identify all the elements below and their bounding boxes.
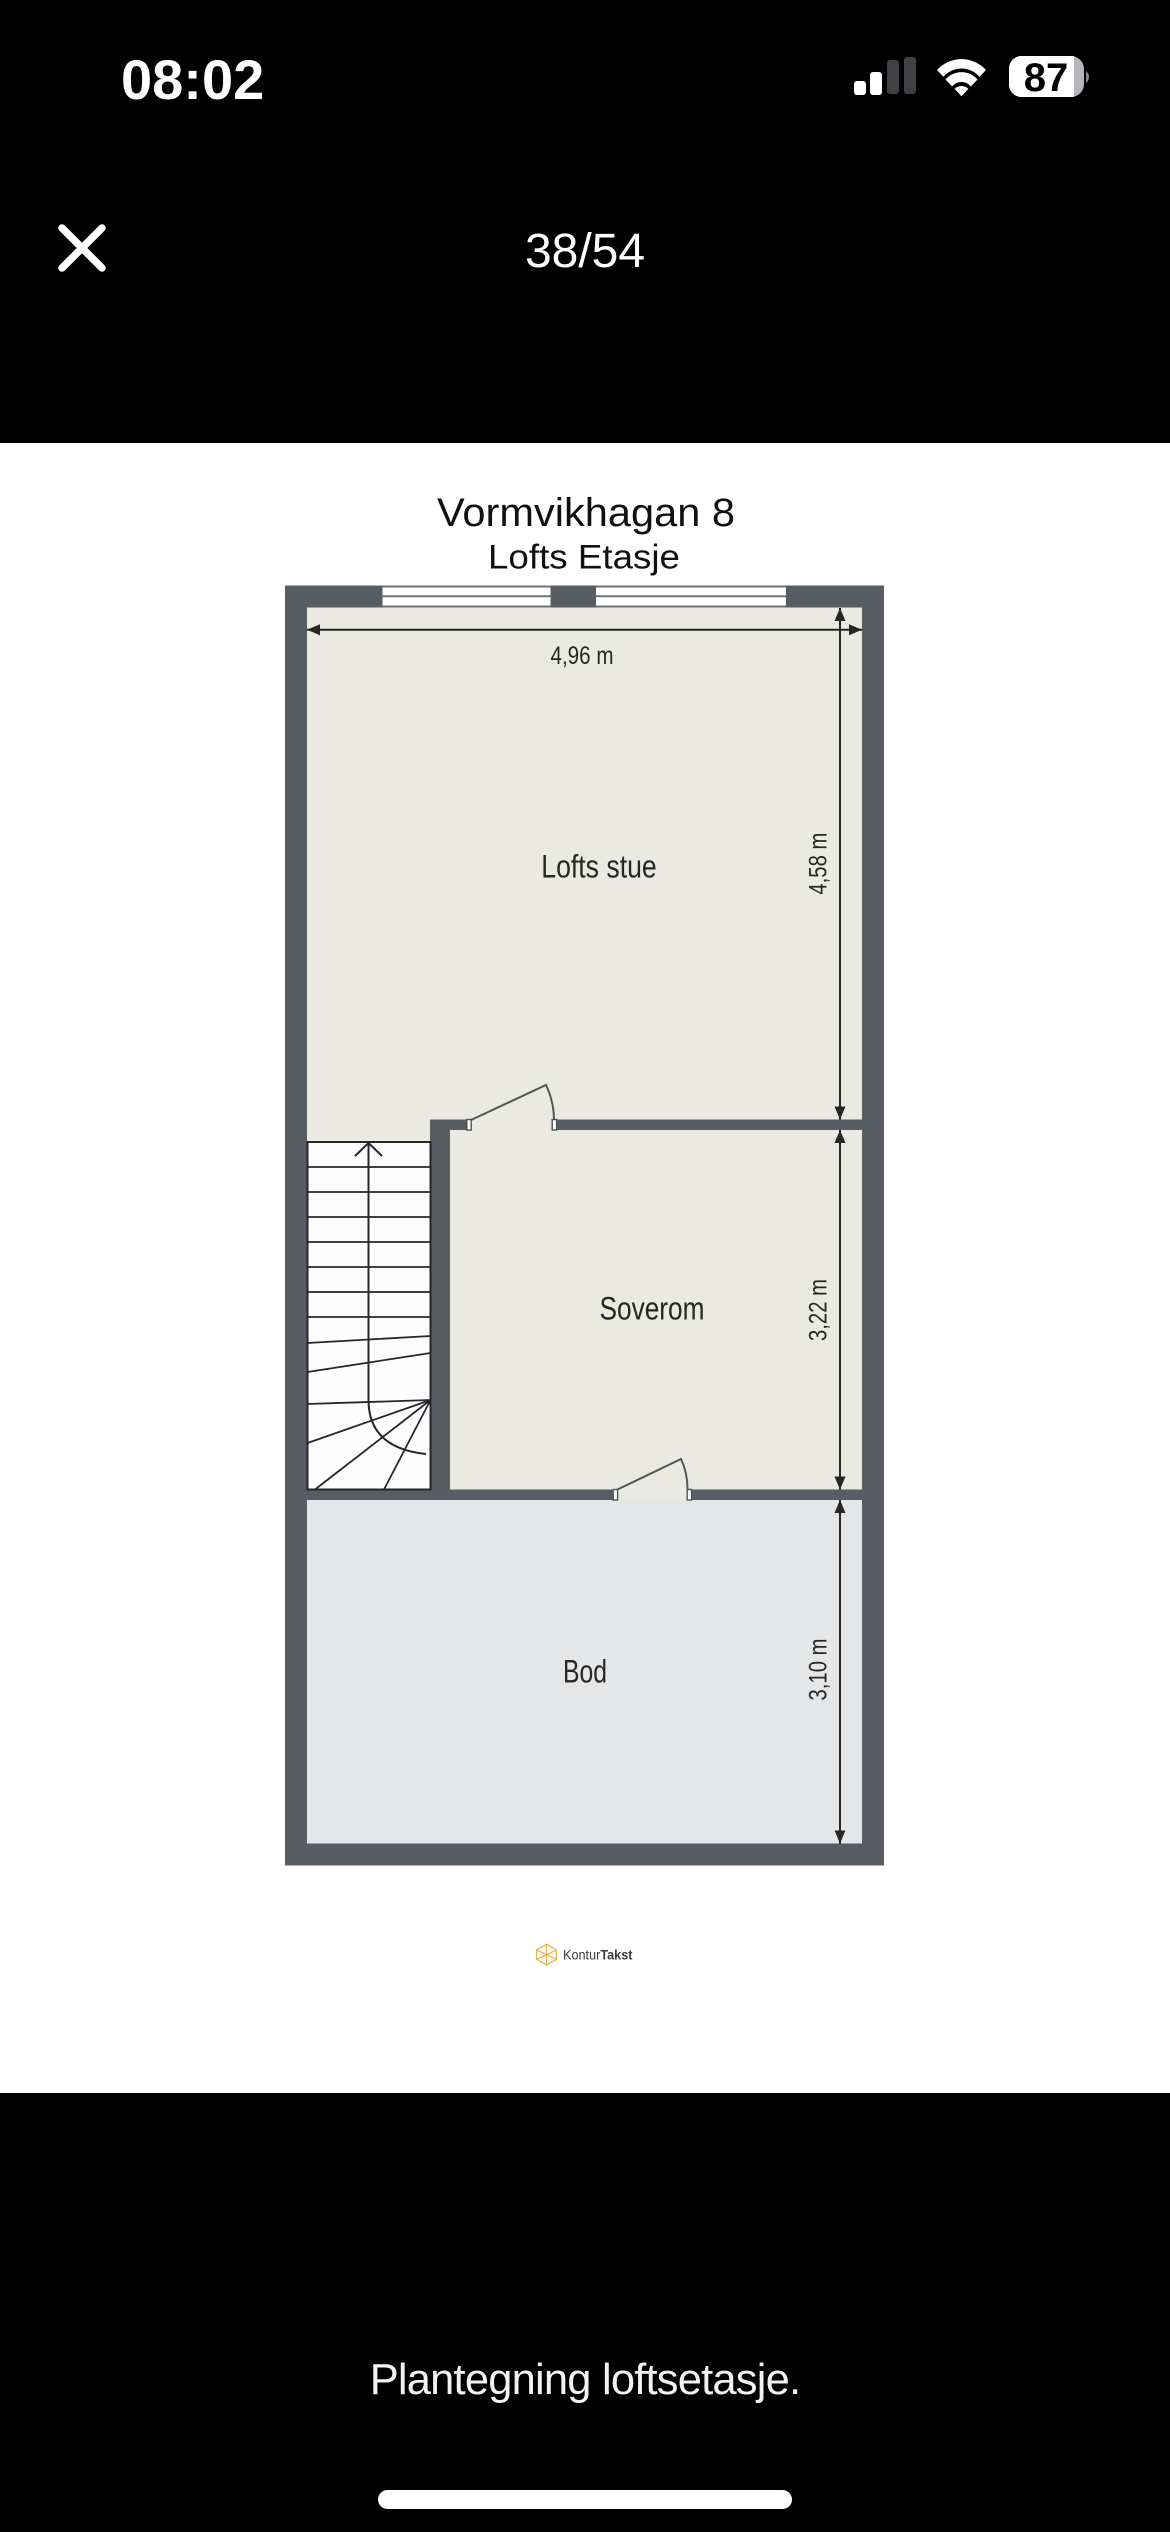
svg-text:87: 87: [1024, 56, 1069, 100]
svg-text:Vormvikhagan 8: Vormvikhagan 8: [437, 491, 735, 535]
svg-text:4,96 m: 4,96 m: [551, 642, 614, 670]
svg-text:3,10 m: 3,10 m: [805, 1639, 833, 1701]
svg-text:Soverom: Soverom: [600, 1291, 705, 1327]
svg-text:Bod: Bod: [563, 1654, 607, 1690]
svg-text:3,22 m: 3,22 m: [805, 1279, 833, 1341]
svg-text:Lofts Etasje: Lofts Etasje: [488, 539, 680, 577]
svg-text:KonturTakst: KonturTakst: [563, 1948, 633, 1963]
svg-text:Lofts stue: Lofts stue: [541, 849, 657, 885]
svg-text:4,58 m: 4,58 m: [805, 833, 833, 895]
